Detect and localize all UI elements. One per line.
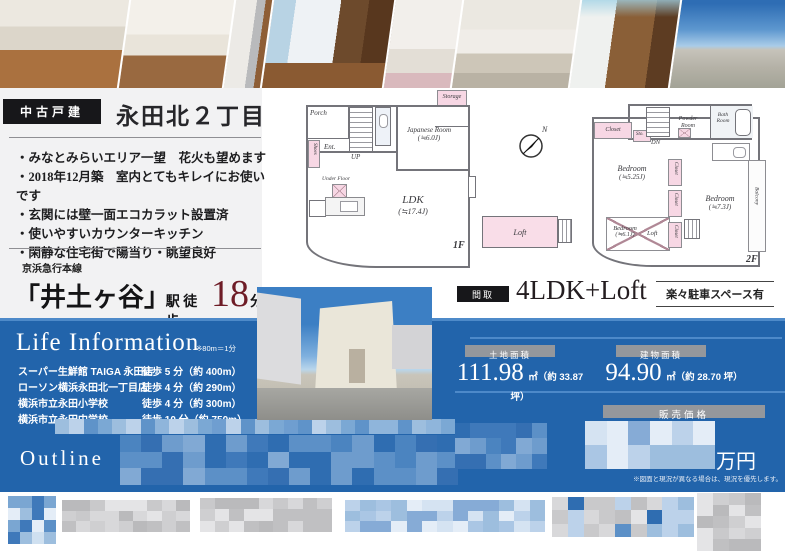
price-label: 販売価格 — [659, 410, 709, 421]
room-label-closet: Closet — [672, 225, 678, 238]
room-bedroom3-loft: Bedroom (≒6.1J) Loft — [606, 217, 670, 251]
room-label-bedroom1: Bedroom (≒5.25J) — [600, 164, 664, 181]
madori-value: 4LDK+Loft — [516, 275, 647, 306]
toilet-icon — [733, 147, 746, 158]
life-item-distance: 徒歩 5 分（約 400m） — [142, 363, 241, 378]
room-closet-strip1: Closet — [668, 159, 682, 186]
life-information-note: ※80m＝1分 — [196, 343, 236, 354]
room-closet-bottom: Closet — [668, 222, 682, 248]
compass-north-label: N — [542, 125, 547, 134]
property-type-label: 中古戸建 — [20, 103, 84, 120]
room-label-sto: Sto. — [636, 132, 644, 138]
parking-note-text: 楽々駐車スペース有 — [666, 289, 764, 301]
price-label-box: 販売価格 — [603, 405, 765, 418]
powder-storage-box — [678, 128, 691, 138]
life-item-name: 横浜市立永田小学校 — [18, 395, 108, 410]
redacted-footer-text — [552, 497, 694, 537]
room-label-closet: Closet — [672, 193, 678, 206]
room-label-bedroom1-name: Bedroom — [600, 164, 664, 173]
bathroom-photo — [449, 0, 582, 88]
life-item-name: スーパー生鮮館 TAIGA 永田店 — [18, 363, 153, 378]
toilet-room-1f — [375, 107, 391, 146]
life-item-distance: 徒歩 4 分（約 290m） — [142, 379, 241, 394]
closet-1f — [435, 106, 468, 127]
redacted-footer-stamp — [697, 493, 761, 551]
price-disclaimer: ※図面と現況が異なる場合は、現況を優先します。 — [560, 473, 782, 483]
feature-item: ・使いやすいカウンターキッチン — [16, 225, 268, 244]
divider — [470, 337, 782, 339]
redacted-price-part2 — [585, 421, 715, 469]
stairs-down — [646, 107, 670, 137]
room-label-bedroom3: Bedroom (≒6.1J) — [608, 225, 642, 239]
neighbor-house-shape — [257, 291, 301, 384]
building-area-label-box: 建物面積 — [616, 345, 706, 357]
floor-label-2f: 2F — [746, 254, 758, 266]
road — [257, 388, 432, 420]
compass: N — [518, 133, 544, 159]
room-bath: Bath Room — [710, 106, 753, 138]
kitchen-counter — [325, 197, 365, 216]
room-label-porch: Porch — [310, 109, 327, 117]
feature-list: ・みなとみらいエリア一望 花火も望めます ・2018年12月築 室内とてもキレイ… — [16, 149, 268, 263]
kitchen-photo — [116, 0, 236, 88]
room-label-bedroom3-size: (≒6.1J) — [608, 232, 642, 239]
room-label-entrance: Ent. — [324, 143, 335, 151]
room-label-shoes: Shoes — [311, 143, 317, 155]
stairs-up-label: UP — [351, 153, 360, 161]
divider — [9, 137, 261, 138]
redacted-footer-logo — [8, 496, 56, 544]
life-item-distance: 徒歩 4 分（約 300m） — [142, 395, 241, 410]
bedroom-photo — [259, 0, 396, 88]
redacted-price-part1 — [455, 423, 547, 469]
room-label-bath: Bath Room — [712, 112, 734, 125]
page-title: 永田北２丁目 — [116, 97, 266, 131]
station-name: 「井土ヶ谷」 — [14, 277, 166, 314]
room-porch: Porch — [308, 107, 349, 139]
property-type-badge: 中古戸建 — [3, 99, 101, 124]
stairs-down-label: DN — [651, 139, 660, 146]
building-area-unit: ㎡（約 28.70 坪） — [666, 372, 743, 383]
house-door-shadow — [349, 349, 365, 383]
floor-label-1f: 1F — [453, 240, 465, 252]
compass-icon — [518, 133, 544, 159]
photo-strip — [0, 0, 785, 88]
redacted-footer-text — [62, 500, 190, 532]
kitchen-sink — [340, 201, 358, 212]
land-area-value: 111.98 — [457, 359, 524, 386]
divider — [9, 248, 261, 249]
room-closet-strip2: Closet — [668, 190, 682, 217]
room-label-closet: Closet — [672, 162, 678, 175]
redacted-footer-text — [345, 500, 545, 532]
parking-note: 楽々駐車スペース有 — [656, 281, 774, 307]
life-information-title: Life Information — [16, 329, 199, 357]
room-closet-2f-topleft: Closet — [594, 122, 632, 139]
stairs-up — [349, 107, 373, 152]
room-label-ldk-size: (≒17.4J) — [388, 207, 438, 216]
room-label-ldk-name: LDK — [388, 194, 438, 207]
room-loft-1f: Loft — [482, 216, 558, 248]
toilet-icon — [379, 114, 388, 128]
window-bump-1f — [468, 176, 476, 198]
outline-title: Outline — [20, 446, 104, 471]
madori-badge: 間取 — [457, 286, 509, 302]
balcony: Balcony — [748, 160, 766, 252]
house-window — [353, 321, 363, 337]
room-label-closet: Closet — [595, 127, 631, 134]
life-item-name: ローソン横浜永田北一丁目店 — [18, 379, 148, 394]
bathtub-icon — [735, 109, 751, 136]
wall — [396, 169, 469, 171]
room-label-underfloor: Under Floor — [322, 176, 350, 182]
room-label-bedroom2-name: Bedroom — [690, 194, 750, 203]
land-area-label-box: 土地面積 — [465, 345, 555, 357]
room-label-bedroom1-size: (≒5.25J) — [600, 173, 664, 181]
living-room-photo — [0, 0, 132, 88]
land-area-value-row: 111.98 ㎡（約 33.87 坪） — [450, 359, 590, 405]
redacted-outline-text — [120, 435, 458, 485]
room-label-balcony: Balcony — [753, 187, 759, 205]
room-label-japanese: Japanese Room (≒6.0J) — [398, 126, 460, 142]
room-label-bedroom2: Bedroom (≒7.3J) — [690, 194, 750, 211]
station-minutes: 18 — [211, 275, 249, 313]
room-label-ldk: LDK (≒17.4J) — [388, 194, 438, 216]
room-storage: Storage — [437, 90, 467, 106]
redacted-strip — [55, 419, 455, 434]
city-view-photo — [667, 0, 785, 88]
toilet-room-2f — [712, 143, 750, 161]
house-exterior-photo — [257, 287, 432, 420]
room-label-japanese-name: Japanese Room — [398, 126, 460, 134]
feature-item: ・みなとみらいエリア一望 花火も望めます — [16, 149, 268, 168]
kitchen-stove — [309, 200, 326, 217]
room-label-loft: Loft — [483, 228, 557, 237]
room-label-storage: Storage — [438, 94, 466, 101]
price-unit: 万円 — [716, 445, 756, 474]
loft-ladder-2f — [684, 219, 700, 239]
feature-item: ・2018年12月築 室内とてもキレイにお使いです — [16, 168, 268, 206]
madori-label: 間取 — [472, 288, 494, 301]
flyer-page: 中古戸建 永田北２丁目 ・みなとみらいエリア一望 花火も望めます ・2018年1… — [0, 0, 785, 554]
redacted-footer-text — [200, 498, 332, 532]
building-area-value: 94.90 — [605, 359, 661, 386]
building-area-value-row: 94.90 ㎡（約 28.70 坪） — [604, 359, 744, 387]
room-label-loft2: Loft — [647, 230, 657, 237]
room-label-bedroom2-size: (≒7.3J) — [690, 203, 750, 211]
room-label-japanese-size: (≒6.0J) — [398, 134, 460, 142]
room-shoes: Shoes — [308, 140, 320, 168]
feature-item: ・玄関には壁一面エコカラット設置済 — [16, 206, 268, 225]
entrance-hall-photo — [567, 0, 682, 88]
neighbor-house-right — [392, 325, 432, 369]
underfloor-storage-box — [332, 184, 347, 198]
loft-ladder — [558, 219, 572, 243]
